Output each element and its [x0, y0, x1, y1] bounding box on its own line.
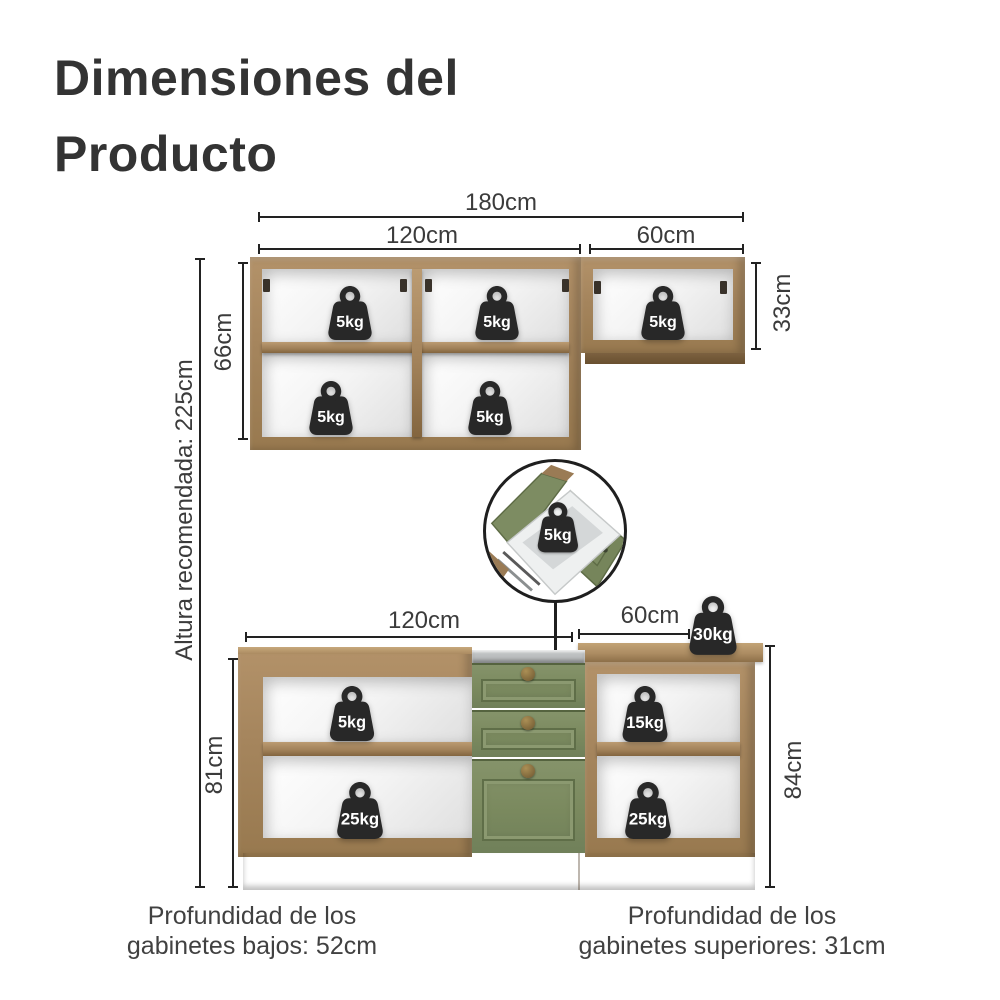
weight-25kg-icon: 25kg: [325, 780, 395, 842]
plinth: [243, 853, 755, 890]
svg-text:5kg: 5kg: [483, 314, 511, 331]
lower-right-width-label: 60cm: [621, 602, 680, 630]
svg-text:15kg: 15kg: [626, 713, 664, 732]
svg-text:5kg: 5kg: [544, 526, 572, 544]
upper-right-height-line: [755, 262, 757, 350]
svg-text:5kg: 5kg: [476, 409, 504, 426]
drawer-2: [472, 710, 585, 757]
recommended-height-label: Altura recomendada: 225cm: [171, 359, 199, 661]
upper-left-width-line: [258, 248, 581, 250]
upper-right-height-label: 33cm: [769, 274, 797, 333]
drawer-knob: [521, 764, 535, 778]
weight-5kg-icon: 5kg: [465, 284, 529, 343]
green-drawer-unit: [472, 663, 585, 853]
open-drawer-illustration: 5kg: [486, 462, 624, 600]
lower-right-width-line: [578, 633, 690, 635]
footnote-lower-depth: Profundidad de los gabinetes bajos: 52cm: [72, 901, 432, 961]
lower-left-shelf: [263, 742, 472, 756]
page-title-line1: Dimensiones del: [54, 40, 459, 116]
lower-cabinet: [238, 643, 765, 890]
upper-left-height-label: 66cm: [210, 313, 238, 372]
drawer-knob: [521, 667, 535, 681]
hinge-icon: [400, 279, 407, 292]
lower-right-height-line: [769, 645, 771, 888]
hinge-icon: [720, 281, 727, 294]
upper-left-height-line: [242, 262, 244, 440]
drawer-3: [472, 759, 585, 853]
hinge-icon: [425, 279, 432, 292]
lower-right-height-label: 84cm: [780, 741, 808, 800]
lower-left-width-label: 120cm: [388, 607, 460, 635]
svg-text:25kg: 25kg: [629, 809, 667, 828]
hinge-icon: [594, 281, 601, 294]
svg-text:5kg: 5kg: [649, 314, 677, 331]
lower-left-height-line: [232, 658, 234, 888]
upper-total-width-line: [258, 216, 744, 218]
drawer-slides: [472, 650, 585, 663]
page-title: Dimensiones del Producto: [54, 40, 459, 192]
plinth-seam: [578, 853, 580, 890]
upper-right-width-label: 60cm: [637, 222, 696, 250]
upper-left-width-label: 120cm: [386, 222, 458, 250]
drawer-knob: [521, 716, 535, 730]
upper-total-width-label: 180cm: [465, 189, 537, 217]
weight-30kg-icon: 30kg: [678, 594, 748, 658]
svg-text:30kg: 30kg: [693, 624, 733, 644]
footnote-lower-depth-line1: Profundidad de los: [72, 901, 432, 931]
hinge-icon: [562, 279, 569, 292]
upper-right-width-line: [589, 248, 744, 250]
svg-text:5kg: 5kg: [317, 409, 345, 426]
footnote-upper-depth-line1: Profundidad de los: [552, 901, 912, 931]
upper-divider: [412, 269, 422, 437]
upper-cabinet-right-underside: [585, 353, 745, 364]
product-dimensions-diagram: Dimensiones del Producto 180cm 120cm 60c…: [0, 0, 1000, 1000]
weight-5kg-icon: 5kg: [319, 684, 385, 744]
drawer-1: [472, 663, 585, 708]
footnote-lower-depth-line2: gabinetes bajos: 52cm: [72, 931, 432, 961]
svg-text:25kg: 25kg: [341, 809, 379, 828]
lower-left-width-line: [245, 636, 573, 638]
footnote-upper-depth: Profundidad de los gabinetes superiores:…: [552, 901, 912, 961]
weight-5kg-icon: 5kg: [458, 379, 522, 438]
weight-25kg-icon: 25kg: [613, 780, 683, 842]
weight-5kg-icon: 5kg: [318, 284, 382, 343]
weight-5kg-icon: 5kg: [631, 284, 695, 343]
weight-15kg-icon: 15kg: [611, 684, 679, 745]
lower-left-height-label: 81cm: [201, 736, 229, 795]
hinge-icon: [263, 279, 270, 292]
footnote-upper-depth-line2: gabinetes superiores: 31cm: [552, 931, 912, 961]
svg-text:5kg: 5kg: [338, 714, 366, 732]
weight-5kg-icon: 5kg: [299, 379, 363, 438]
page-title-line2: Producto: [54, 116, 459, 192]
svg-text:5kg: 5kg: [336, 314, 364, 331]
drawer-detail-circle: 5kg: [483, 459, 627, 603]
lower-left-top-rail: [238, 647, 472, 654]
